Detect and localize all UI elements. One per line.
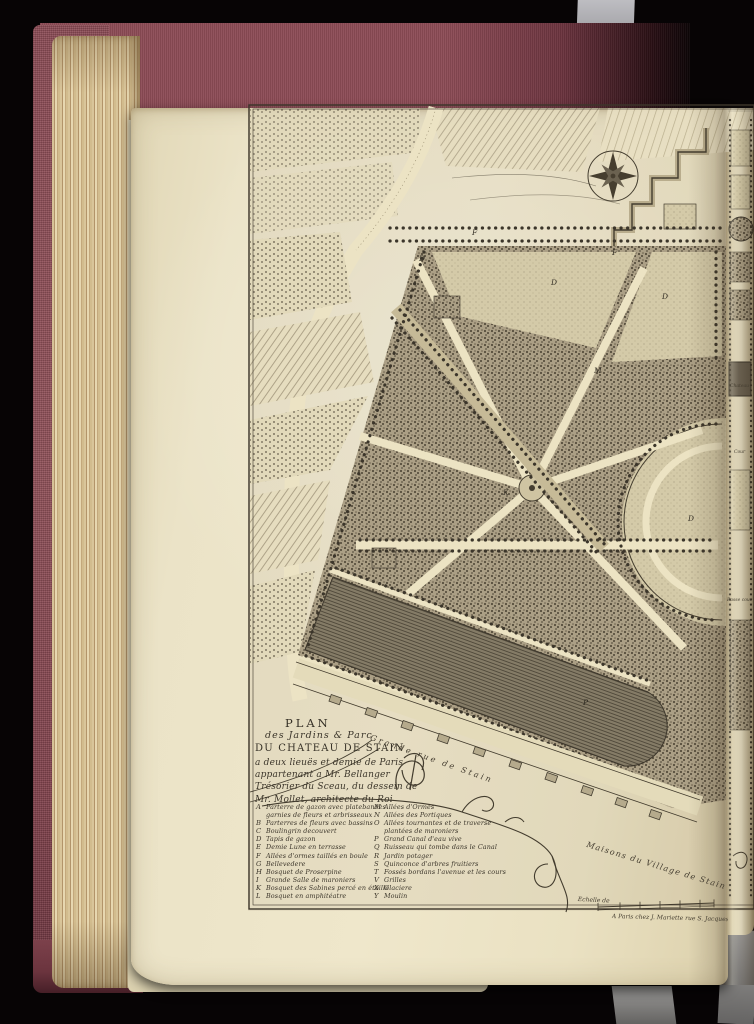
book-photo: 1921-6-322 <box>0 0 754 1024</box>
legend-text: Parterre de gazon avec platebandes <box>266 803 386 811</box>
legend-row: DTapis de gazon <box>256 835 389 843</box>
legend-row: HBosquet de Proserpine <box>256 868 389 876</box>
legend-row: AParterre de gazon avec platebandes <box>256 803 389 811</box>
legend-text: Bellevedere <box>266 860 306 868</box>
legend-key: T <box>374 868 384 876</box>
legend-text: Quinconce d'arbres fruitiers <box>384 860 479 868</box>
legend-text: Demie Lune en terrasse <box>266 843 346 851</box>
legend-row: plantées de maroniers <box>374 827 506 835</box>
map-letter: D <box>419 254 425 263</box>
map-letter: P <box>583 698 588 707</box>
legend-text: Fossés bordans l'avenue et les cours <box>384 868 506 876</box>
legend-row: NAllées des Portiques <box>374 811 506 819</box>
legend-key: P <box>374 835 384 843</box>
legend-text: Boulingrin decouvert <box>266 827 337 835</box>
legend-key: Q <box>374 843 384 851</box>
legend-column-right: MAllées d'Ormes NAllées des Portiques OA… <box>374 803 506 900</box>
legend-text: Grilles <box>384 876 406 884</box>
map-letter: D <box>688 514 694 523</box>
legend-text: Allées des Portiques <box>384 811 452 819</box>
legend-key: K <box>256 884 266 892</box>
legend-row: RJardin potager <box>374 852 506 860</box>
page-weight-strap-bottom <box>612 986 677 1024</box>
legend-key <box>256 811 266 819</box>
legend-row: TFossés bordans l'avenue et les cours <box>374 868 506 876</box>
legend-row: KBosquet des Sabines percé en étoille <box>256 884 389 892</box>
legend-row: MAllées d'Ormes <box>374 803 506 811</box>
legend-text: Allées tournantes et de traverse <box>384 819 491 827</box>
label-chateau: Chateau <box>730 384 749 389</box>
legend-text: Grande Salle de maroniers <box>266 876 356 884</box>
legend-key: E <box>256 843 266 851</box>
legend-key: D <box>256 835 266 843</box>
legend-key: S <box>374 860 384 868</box>
title-cartouche: PLAN des Jardins & Parc DU CHATEAU DE ST… <box>255 716 395 806</box>
legend-text: Allées d'ormes taillés en boule <box>266 852 368 860</box>
legend-row: VGrilles <box>374 876 506 884</box>
legend-text: Bosquet de Proserpine <box>266 868 342 876</box>
legend-row: PGrand Canal d'eau vive <box>374 835 506 843</box>
legend-key: V <box>374 876 384 884</box>
legend-row: EDemie Lune en terrasse <box>256 843 389 851</box>
legend-text: Moulin <box>384 892 407 900</box>
legend-row: CBoulingrin decouvert <box>256 827 389 835</box>
legend-key: I <box>256 876 266 884</box>
legend-key: R <box>374 852 384 860</box>
legend-row: garnies de fleurs et arbrisseaux <box>256 811 389 819</box>
plate-title: PLAN <box>285 716 395 730</box>
legend-text: garnies de fleurs et arbrisseaux <box>266 811 372 819</box>
legend-row: BParterres de fleurs avec bassins <box>256 819 389 827</box>
legend-row: GBellevedere <box>256 860 389 868</box>
legend-row: OAllées tournantes et de traverse <box>374 819 506 827</box>
label-basse-cour: Basse cour <box>727 598 752 603</box>
map-letter: D <box>551 278 557 287</box>
legend-text: Jardin potager <box>384 852 432 860</box>
legend-key: G <box>256 860 266 868</box>
plate-title-line4: a deux lieuës et demie de Paris <box>255 757 395 769</box>
legend-text: Parterres de fleurs avec bassins <box>266 819 373 827</box>
legend-row: XGlaciere <box>374 884 506 892</box>
legend-key: A <box>256 803 266 811</box>
legend-key: O <box>374 819 384 827</box>
legend-text: Bosquet en amphitéatre <box>266 892 346 900</box>
legend-key <box>374 827 384 835</box>
plate-title-line5: appartenant a Mr. Bellanger <box>255 769 395 781</box>
legend-key: X <box>374 884 384 892</box>
legend-text: Allées d'Ormes <box>384 803 434 811</box>
legend-text: Tapis de gazon <box>266 835 316 843</box>
legend-text: Grand Canal d'eau vive <box>384 835 462 843</box>
legend-row: SQuinconce d'arbres fruitiers <box>374 860 506 868</box>
legend-key: N <box>374 811 384 819</box>
legend-row: QRuisseau qui tombe dans le Canal <box>374 843 506 851</box>
legend-text: plantées de maroniers <box>384 827 459 835</box>
plate-title-line3: DU CHATEAU DE STAIN <box>255 743 395 754</box>
legend-row: IGrande Salle de maroniers <box>256 876 389 884</box>
legend-column-left: AParterre de gazon avec platebandes garn… <box>256 803 389 900</box>
label-cour: Cour <box>734 450 745 455</box>
legend-key: B <box>256 819 266 827</box>
legend-key: C <box>256 827 266 835</box>
legend-key: M <box>374 803 384 811</box>
map-letter: D <box>662 292 668 301</box>
legend-row: LBosquet en amphitéatre <box>256 892 389 900</box>
legend-key: L <box>256 892 266 900</box>
map-letter: M <box>594 366 602 375</box>
map-letter: K <box>503 488 509 497</box>
legend-key: H <box>256 868 266 876</box>
map-letter: F <box>612 248 617 257</box>
legend-row: YMoulin <box>374 892 506 900</box>
legend-key: Y <box>374 892 384 900</box>
plate-title-line6: Trésorier du Sceau, du dessein de <box>255 781 395 793</box>
map-letter: F <box>472 228 477 237</box>
legend-text: Glaciere <box>384 884 412 892</box>
legend-text: Ruisseau qui tombe dans le Canal <box>384 843 497 851</box>
page-stack-fore-edge <box>52 36 140 988</box>
legend-text: Bosquet des Sabines percé en étoille <box>266 884 389 892</box>
legend-key: F <box>256 852 266 860</box>
legend-row: FAllées d'ormes taillés en boule <box>256 852 389 860</box>
